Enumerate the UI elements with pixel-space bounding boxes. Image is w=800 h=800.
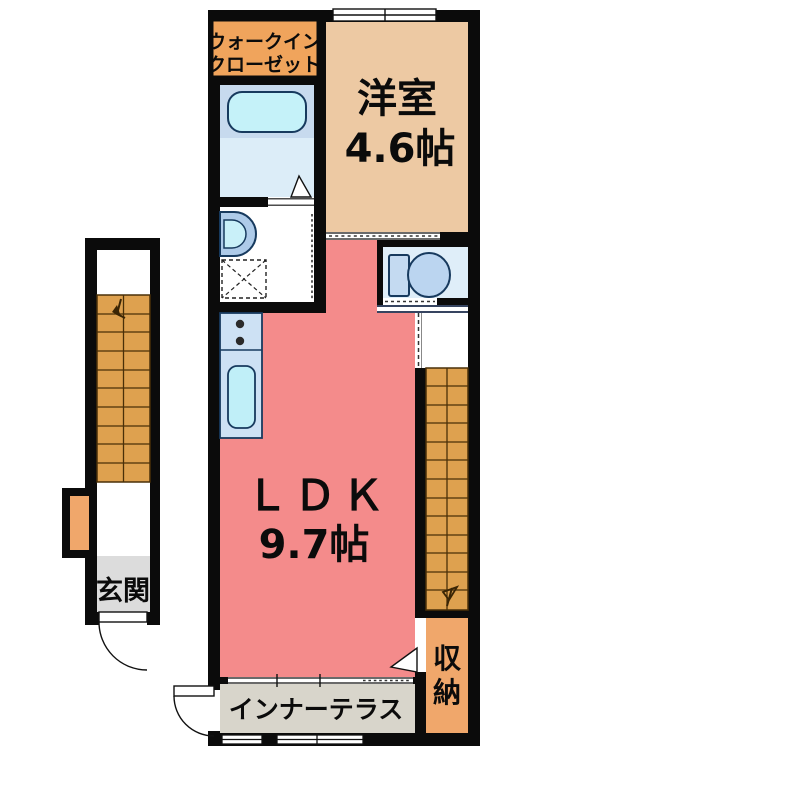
toilet [389, 253, 450, 297]
entrance-label: 玄関 [96, 575, 150, 607]
window-top [333, 9, 436, 21]
stove-burner-1 [236, 320, 244, 328]
storage-label-char2: 納 [433, 676, 461, 709]
entrance-door [99, 612, 147, 670]
hall-corridor-floor [326, 240, 377, 313]
toilet-partition [377, 305, 468, 313]
washbasin [220, 212, 256, 256]
floor-plan: 玄関 [0, 0, 800, 800]
floor-plan-svg: 玄関 [0, 0, 800, 800]
walk-in-closet: ウォークイン クローゼット [207, 20, 321, 77]
staircase-left [97, 295, 150, 482]
sliding-opening-toilet [383, 298, 437, 305]
main-unit: ウォークイン クローゼット [174, 9, 480, 746]
kitchen-sink [228, 366, 255, 428]
western-room-label: 洋室 [357, 76, 437, 122]
ldk-label: ＬＤＫ [246, 471, 390, 520]
walk-in-closet-label-2: クローゼット [207, 53, 321, 76]
western-room-size: 4.6帖 [345, 126, 456, 172]
kitchen-counter [220, 313, 262, 438]
inner-terrace-label: インナーテラス [229, 695, 404, 724]
porch-step [70, 496, 89, 550]
entrance-annex: 玄関 [62, 238, 160, 670]
stairs-landing-door [415, 313, 426, 368]
walk-in-closet-label-1: ウォークイン [207, 31, 321, 53]
ldk-size: 9.7帖 [259, 522, 370, 568]
washing-machine-pan [222, 260, 266, 298]
staircase-right [426, 368, 468, 610]
storage-label-char1: 収 [433, 642, 462, 675]
bathroom-door-opening [268, 198, 314, 206]
window-bottom-left [222, 735, 262, 744]
stove-burner-2 [236, 337, 244, 345]
window-bottom-center [277, 733, 363, 746]
bathtub [228, 92, 306, 132]
sliding-opening-western-room [326, 232, 440, 240]
